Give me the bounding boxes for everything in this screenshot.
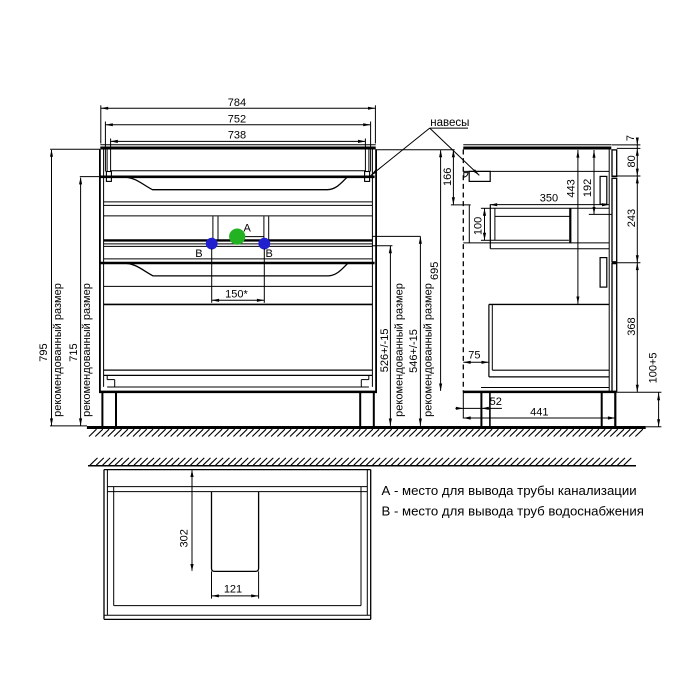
svg-text:715: 715 [68, 343, 80, 361]
svg-text:рекомендованный размер: рекомендованный размер [394, 283, 406, 417]
svg-text:243: 243 [626, 209, 638, 227]
svg-text:752: 752 [228, 113, 246, 125]
svg-text:B: B [266, 248, 273, 260]
svg-text:738: 738 [228, 130, 246, 142]
svg-text:784: 784 [228, 97, 246, 109]
svg-text:75: 75 [468, 349, 480, 361]
svg-text:100+5: 100+5 [647, 352, 659, 383]
svg-text:166: 166 [442, 168, 454, 186]
svg-text:795: 795 [38, 343, 50, 361]
svg-text:100: 100 [472, 217, 484, 235]
svg-text:350: 350 [540, 193, 558, 205]
svg-text:302: 302 [178, 529, 190, 547]
svg-text:443: 443 [565, 179, 577, 197]
svg-text:В - место для вывода труб водо: В - место для вывода труб водоснабжения [382, 504, 644, 519]
svg-text:A: A [244, 223, 252, 235]
svg-text:А - место для вывода трубы кан: А - место для вывода трубы канализации [382, 483, 637, 498]
svg-text:рекомендованный размер: рекомендованный размер [81, 283, 93, 417]
svg-text:навесы: навесы [430, 117, 469, 129]
svg-text:192: 192 [582, 179, 594, 197]
svg-text:7: 7 [625, 135, 637, 141]
svg-text:695: 695 [429, 262, 441, 280]
svg-text:121: 121 [224, 584, 242, 596]
svg-text:рекомендованный размер: рекомендованный размер [52, 283, 64, 417]
svg-text:546+/-15: 546+/-15 [408, 329, 420, 373]
svg-text:рекомендованный размер: рекомендованный размер [423, 283, 435, 417]
svg-text:368: 368 [626, 317, 638, 335]
svg-text:441: 441 [530, 407, 548, 419]
svg-text:526+/-15: 526+/-15 [379, 329, 391, 373]
svg-text:80: 80 [626, 155, 638, 167]
svg-text:150*: 150* [225, 288, 248, 300]
svg-text:B: B [195, 248, 202, 260]
svg-text:52: 52 [490, 396, 502, 408]
